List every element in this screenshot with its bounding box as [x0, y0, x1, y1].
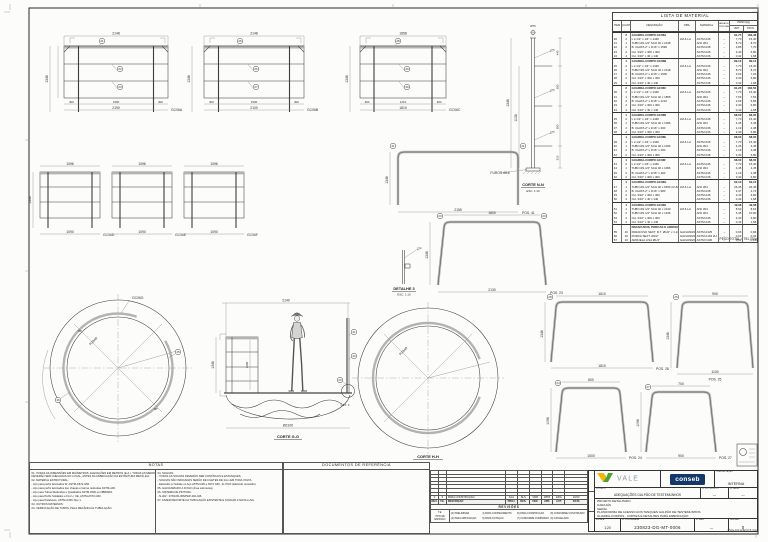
dim-text: 300	[158, 100, 163, 104]
dim-text: 2190	[112, 106, 120, 110]
item-bubble: 23	[118, 85, 122, 89]
col-unit: UNIT.	[730, 26, 744, 31]
col-total: TOTAL	[744, 26, 757, 31]
material-list-header: ITEM QUANT. DESCRIÇÃO OBS. MATERIAL ÁREA…	[613, 21, 757, 32]
dim-text: 1100	[711, 370, 718, 374]
detalhe-3-caption: DETALHE 3	[393, 286, 415, 291]
vale-number-value: —	[695, 526, 728, 530]
reference-docs-panel: DOCUMENTOS DE REFERÊNCIA	[283, 462, 430, 534]
angle-text: 45°	[78, 329, 82, 333]
material-row: 382CH. 3/16" x 300 x 300ASTM A36–3,406,8…	[613, 130, 757, 134]
dim-text: 1096	[546, 417, 550, 425]
scale-label: ESCALA	[596, 519, 604, 521]
dim-text: 2148	[250, 32, 258, 36]
frame-gc06d: 1096 1346 1090 GC06D	[28, 162, 115, 237]
typical-detail-box	[737, 444, 757, 466]
col-area-pintura: ÁREA DE PINTURA	[719, 21, 731, 31]
vale-number-cell: Nº VALE —	[695, 519, 729, 531]
item-bubble: 45	[176, 350, 180, 354]
col-descricao: DESCRIÇÃO	[631, 21, 679, 31]
material-row: 244CH. 3/16" x 40 x 140ASTM A36–0,421,68	[613, 54, 757, 58]
vale-logo-mark: VALE	[595, 471, 647, 484]
revisions-caption: REVISÕES	[430, 504, 588, 511]
dim-text: 1590	[113, 100, 120, 104]
material-row: 422CH. 3/16" x 300 x 300ASTM A36–3,406,8…	[613, 153, 757, 157]
corte-gg-caption: CORTE G-G	[277, 434, 299, 439]
dim-text: Ø76	[530, 24, 536, 28]
drawing-sheet: .ln{stroke:#3d3d3d;stroke-width:.55;fill…	[0, 0, 768, 542]
uframe-pos41: 1346 2155 POS. 41 41 41	[385, 143, 535, 215]
col-item: ITEM	[613, 21, 622, 31]
item-bubble: 28	[548, 295, 552, 299]
dim-text: 1810	[598, 364, 606, 368]
dim-text: 1346	[540, 330, 544, 338]
item-bubble: 41	[352, 330, 356, 334]
dim-text: 2100	[250, 106, 258, 110]
dim-text: 1346	[28, 196, 32, 204]
item-bubble: 27	[646, 385, 650, 389]
drawing-number-cell: Nº CONTRATADA 230823-DG-MT-0006	[621, 519, 695, 531]
item-bubble: 22	[118, 67, 122, 71]
material-row: 462CH. 3/16" x 300 x 300ASTM A36–3,406,8…	[613, 175, 757, 179]
frame-gc06f: 1096 1090 GC06F	[184, 162, 258, 237]
corte-nn-scale: ESC. 1:10	[526, 189, 540, 193]
pos-label: POS. 23	[550, 291, 563, 295]
dim-text: 2140	[282, 299, 290, 303]
dim-text: 440	[556, 50, 560, 55]
dim-text: 1090	[66, 230, 74, 234]
title-block: VALE conseb CLASSIFICAÇÃO INTERNA PROJET…	[588, 470, 758, 532]
revision-rows: 06PARA CONSTRUÇÃOSLASLSVDRWPRERG10/23REV…	[430, 470, 588, 504]
uframe-pos27: 700 1096 900 POS. 27 27	[636, 382, 732, 460]
item-bubble: 42	[352, 354, 356, 358]
frame-gc06c: 1858 1346 300 1210 300 1810 GC06C 28 29 …	[345, 32, 461, 112]
project-number-label: Nº DO PROJETO	[702, 488, 718, 490]
dim-text: 1346	[45, 75, 49, 83]
pos-label: POS. 25	[709, 378, 722, 382]
item-bubble: 41	[521, 144, 525, 148]
dim-text: 1610	[598, 292, 606, 296]
callout-furos: FUROS Ø16	[490, 171, 509, 175]
material-row: 294CH. 3/16" x 40 x 140ASTM A36–0,421,68	[613, 81, 757, 85]
dim-text: 300	[556, 84, 560, 89]
dim-text: 1090	[210, 230, 218, 234]
corte-nn-caption: CORTE N-N	[522, 182, 544, 187]
emission-type-item: (6) PARA CONSTRUÇÃO	[517, 512, 551, 515]
drawing-number-value: 230823-DG-MT-0006	[621, 525, 694, 530]
emission-type-label: T.E.TIPO DEEMISSÃO	[431, 510, 450, 521]
emission-type-items: (0) PRELIMINAR(4) PARA CONHECIMENTO(6) P…	[450, 510, 587, 521]
dim-text: 300	[294, 100, 299, 104]
dim-text: 1810	[399, 106, 407, 110]
part-label: GC06G	[132, 296, 144, 300]
pos-label: POS. 28	[656, 367, 669, 371]
revision-empty-row	[430, 474, 588, 478]
dim-text: 1096	[66, 162, 74, 166]
dim-text: 1210	[400, 100, 407, 104]
material-list-title: LISTA DE MATERIAL	[613, 13, 757, 21]
item-bubble: 27	[254, 85, 258, 89]
material-row: 504CH. 3/16" x 40 x 140ASTM A36–0,421,68	[613, 197, 757, 201]
dim-text: 800	[588, 378, 594, 382]
note-line: 07- FAZER RECORTE NA TUBULAÇÃO EXISTENTE…	[158, 499, 281, 503]
description-line: GUARDA-CORPOS - CORTES E DETALHES PARA F…	[597, 515, 755, 518]
pos-label: POS. 41	[522, 211, 535, 215]
conseb-logo-text: conseb	[670, 474, 705, 485]
dim-text: Ø2100	[283, 424, 293, 428]
dim-text: 1346	[345, 75, 349, 83]
se-number-cell: Nº DA SE —	[729, 488, 757, 498]
dim-text: 1346	[666, 332, 670, 340]
scale-value: 1:20	[595, 526, 620, 530]
dim-text: 1346	[506, 99, 510, 107]
notes-title: NOTAS	[30, 463, 282, 470]
emission-type-label-line: EMISSÃO	[431, 518, 449, 521]
emission-type-legend: T.E.TIPO DEEMISSÃO (0) PRELIMINAR(4) PAR…	[430, 510, 588, 522]
scale-cell: ESCALA 1:20	[595, 519, 621, 531]
frame-gc06e: 1096 1090 GC06E	[112, 162, 187, 237]
dim-text: 1500	[251, 100, 258, 104]
corte-gg: 2140 1346 1200 Ø2100 DET. 3 CORTE	[211, 299, 357, 440]
item-bubble: 41	[391, 144, 395, 148]
material-rows: 2GUARDA-CORPO GC06A91,74183,48202L 2.1/2…	[613, 32, 757, 243]
dim-text: 1346	[385, 176, 389, 184]
revision-empty-row	[430, 470, 588, 474]
item-bubble: 30	[405, 85, 409, 89]
project-cell: PROJETO ADEQUAÇÕES GALPÃO DE TESTEMUNHOS	[595, 488, 701, 498]
col-material: MATERIAL	[696, 21, 719, 31]
dim-text: 2148	[112, 32, 120, 36]
revision-empty-row	[430, 492, 588, 496]
dim-text: 1090	[138, 230, 146, 234]
revision-empty-row	[430, 484, 588, 488]
detalhe-3-scale: ESC. 1:10	[397, 293, 411, 297]
se-number-label: Nº DA SE	[730, 488, 739, 490]
note-line: 04- VERIFICAÇÃO DE TUBOS, PELA MECÂNICA …	[32, 507, 154, 511]
uframe-pos23: 1800 1346 2130 POS. 23 23 23	[425, 211, 563, 295]
revisions-table: 06PARA CONSTRUÇÃOSLASLSVDRWPRERG10/23REV…	[430, 470, 588, 523]
item-bubble: 21	[100, 39, 104, 43]
dim-text: 1858	[399, 32, 407, 36]
dim-text: 1000	[587, 454, 595, 458]
revision-data-row: 06PARA CONSTRUÇÃOSLASLSVDRWPRERG10/23	[430, 495, 588, 499]
pos-label: POS. 27	[719, 456, 732, 460]
reference-docs-title: DOCUMENTOS DE REFERÊNCIA	[284, 463, 429, 470]
emission-type-item: (5) PARA COTAÇÃO	[482, 517, 517, 520]
dim-text: 1096	[636, 419, 640, 427]
revision-empty-row	[430, 488, 588, 492]
notes-column-1: 01- TODAS AS DIMENSÕES EM MILÍMETROS, EL…	[30, 470, 156, 534]
item-bubble: 29	[405, 67, 409, 71]
vale-number-label: Nº VALE	[696, 519, 704, 521]
classification-cell: CLASSIFICAÇÃO INTERNA	[715, 471, 757, 487]
col-quant: QUANT.	[622, 21, 631, 31]
emission-type-item: (4) PARA CONHECIMENTO	[482, 512, 517, 515]
drawing-number-label: Nº CONTRATADA	[622, 519, 639, 521]
item-bubble: 23	[338, 378, 342, 382]
radius-text: R1040	[88, 336, 98, 346]
drawing-description: PROJETO DETALHADOCARAJÁSGERALPLATAFORMA …	[595, 499, 757, 518]
dim-text: 1346	[211, 361, 215, 369]
col-peso: PESO (kg) UNIT. TOTAL	[730, 21, 757, 31]
angle-text: 30°	[154, 407, 158, 411]
revision-empty-row	[430, 481, 588, 485]
material-row: 344CH. 3/16" x 40 x 140ASTM A36–0,421,68	[613, 108, 757, 112]
material-row: 544CH. 3/16" x 40 x 140ASTM A36–0,421,68	[613, 220, 757, 224]
part-label: GC06F	[247, 233, 258, 237]
frame-gc06a: 2148 1346 300 1590 300 2190 GC06A 21 22 …	[45, 32, 183, 112]
emission-type-item: (8) CONFORME CONSTRUÍDO	[550, 512, 587, 515]
dim-text: 1096	[210, 162, 218, 166]
part-label: GC06B	[307, 108, 319, 112]
corte-hh: R1040 CORTE H-H	[352, 302, 504, 460]
material-total: PESO TOTAL = 751,70 kg	[612, 237, 758, 241]
dim-text: 300	[365, 100, 370, 104]
notes-panel: NOTAS 01- TODAS AS DIMENSÕES EM MILÍMETR…	[29, 462, 283, 534]
part-label: GC06E	[175, 233, 187, 237]
revision-header-row: REV.T.E.DESCRIÇÃOPROJ.DES.VER.APR.AUT.DA…	[430, 499, 588, 503]
part-label: GC06C	[449, 108, 461, 112]
dim-text: 1138	[514, 114, 518, 121]
item-bubble: 23	[542, 214, 546, 218]
emission-type-item: (9) CANCELADO	[550, 517, 587, 520]
dim-text: 300	[69, 100, 74, 104]
post-corte: Ø76 440 300 390 216 1346 1138 FUROS Ø16 …	[490, 24, 562, 193]
worker-figure	[289, 313, 308, 391]
frame-gc06b: 2148 1346 300 1500 300 2100 GC06B 25 26 …	[187, 32, 319, 112]
detalhe-3: DETALHE 3 ESC. 1:10	[392, 247, 422, 297]
project-value: ADEQUAÇÕES GALPÃO DE TESTEMUNHOS	[595, 493, 700, 497]
item-bubble: 28	[396, 39, 400, 43]
revision-empty-row	[430, 477, 588, 481]
form-footnote: PM-E-102 ANEXO B (A1)	[728, 529, 757, 532]
item-bubble: 46	[56, 398, 60, 402]
item-bubble: 23	[438, 214, 442, 218]
emission-type-item: (2) PARA APROVAÇÃO	[451, 517, 482, 520]
part-label: GC06D	[103, 233, 115, 237]
item-bubble: 25	[238, 39, 242, 43]
dim-text: 900	[678, 454, 684, 458]
item-bubble: 24	[556, 381, 560, 385]
material-list: LISTA DE MATERIAL ITEM QUANT. DESCRIÇÃO …	[612, 12, 758, 243]
revision-label: REVISÃO	[730, 519, 739, 521]
dim-text: 216	[556, 155, 560, 160]
dim-text: 2130	[488, 288, 496, 292]
conseb-logo: conseb	[661, 471, 715, 487]
vale-logo: VALE	[595, 471, 661, 487]
corte-hh-caption: CORTE H-H	[417, 454, 439, 459]
dim-text: 900	[712, 292, 718, 296]
item-bubble: 25	[674, 295, 678, 299]
pos-label: POS. 24	[629, 456, 642, 460]
dim-text: 1346	[187, 75, 191, 83]
item-bubble: 26	[254, 67, 258, 71]
ring-gc06g: R1040 GC06G 45° 30° 45 46	[43, 294, 192, 442]
emission-type-item: (0) PRELIMINAR	[451, 512, 482, 515]
uframe-pos28: 1610 1346 1810 POS. 28 28	[540, 292, 669, 371]
dim-text: 1200	[245, 361, 249, 368]
dim-text: 2155	[454, 208, 462, 212]
emission-type-item: (7) CONFORME COMPRADO	[517, 517, 551, 520]
dim-text: 1800	[488, 211, 496, 215]
dim-text: 390	[556, 124, 560, 129]
se-number-value: —	[729, 493, 757, 497]
classification-value: INTERNA	[715, 482, 757, 486]
uframe-pos24: 800 1096 1000 POS. 24 24	[546, 378, 642, 460]
col-obs: OBS.	[679, 21, 696, 31]
classification-label: CLASSIFICAÇÃO	[716, 471, 733, 473]
part-label: GC06A	[171, 108, 183, 112]
dim-text: 300	[209, 100, 214, 104]
project-number-cell: Nº DO PROJETO —	[701, 488, 729, 498]
dim-text: 1346	[425, 251, 429, 259]
vale-logo-text: VALE	[617, 476, 639, 483]
radius-text: R1040	[398, 346, 408, 356]
detail-callout: DET. 3	[341, 403, 350, 407]
dim-text: 700	[678, 382, 684, 386]
project-number-value: —	[701, 493, 728, 497]
project-label: PROJETO	[596, 488, 606, 490]
dim-text: 1096	[138, 162, 146, 166]
uframe-pos25: 900 1346 1100 POS. 25 25	[666, 292, 753, 382]
notes-column-2: 04- SOLDAS: - TODAS AS SOLDAS DEVERÃO SE…	[156, 470, 282, 534]
dim-text: 300	[437, 100, 442, 104]
